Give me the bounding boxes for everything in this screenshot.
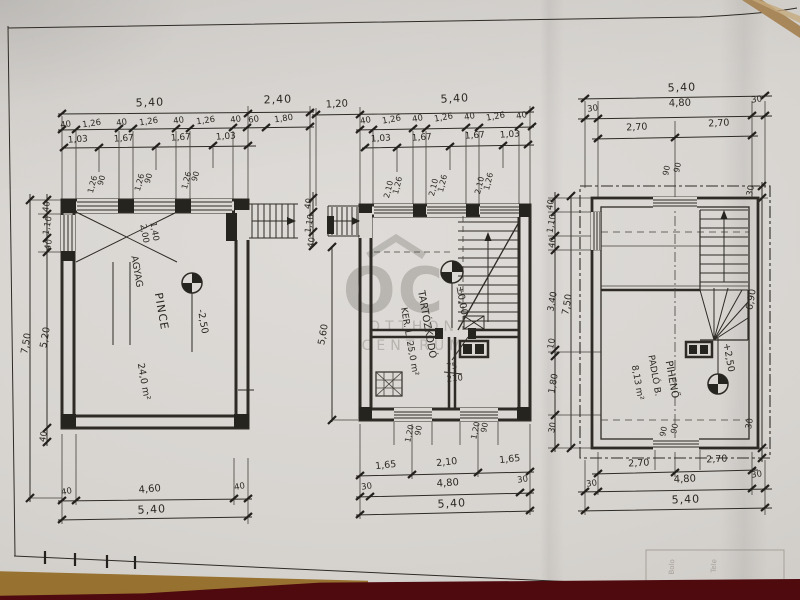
dim-label: 7,50 <box>19 332 34 355</box>
dim-label: 1,03 <box>68 134 89 145</box>
dim-label: 40 <box>60 486 72 498</box>
title-block-fragment: Bolo <box>668 559 677 575</box>
dim-label: 5,20 <box>38 326 53 349</box>
dim-label: 1,26 <box>196 115 216 128</box>
dim-label: 2,70 <box>706 453 728 465</box>
dim-label: 2,70 <box>626 121 648 133</box>
upper-fixtures <box>686 342 712 357</box>
dim-label: 1,10 <box>545 213 558 233</box>
dim-label: 5,40 <box>135 96 164 110</box>
dim-label: 1,67 <box>171 132 192 143</box>
dim-label: 1,26 <box>139 116 159 129</box>
dim-label: 40 <box>230 114 242 125</box>
door-size-label: 210 <box>446 373 463 385</box>
dim-label: 4,80 <box>673 473 696 485</box>
dim-label: 1,65 <box>499 453 521 466</box>
dim-label: 4,80 <box>669 98 692 110</box>
window-size-label: 90 <box>661 165 672 177</box>
dim-label: 1,03 <box>216 131 237 142</box>
dim-label: 40 <box>116 117 128 128</box>
window-size-label: 90 <box>413 425 424 437</box>
drawing-layer: OC OTTHON CENTRUM <box>0 0 800 600</box>
dim-label: 30 <box>517 474 529 485</box>
dim-label: 2,70 <box>708 117 730 129</box>
dim-label: 5,40 <box>440 91 469 105</box>
room-label-basement: PINCE <box>152 292 171 331</box>
dim-label: 1,67 <box>114 133 135 144</box>
photographed-floorplan-sheet: OC OTTHON CENTRUM <box>0 0 800 600</box>
ground-floor-plan: 1,20 5,40 40 1,26 40 1,26 40 1,26 40 1,0… <box>303 91 536 519</box>
window-size-label: 90 <box>479 422 490 434</box>
title-block: Bolo Tele <box>646 550 784 584</box>
dim-label: 40 <box>545 198 557 210</box>
dim-label: 40 <box>359 115 371 127</box>
dim-label: 5,40 <box>137 502 166 516</box>
upper-dimension-lines <box>548 92 772 515</box>
room-area-label: 8,13 m² <box>629 364 645 401</box>
dim-label: 1,80 <box>274 113 294 126</box>
upper-stair <box>700 210 748 340</box>
dim-label: 1,10 <box>41 215 54 235</box>
title-block-fragment: Tele <box>710 559 719 574</box>
dim-label: 1,26 <box>485 110 505 123</box>
dim-label: 5,60 <box>316 323 331 346</box>
window-size-label: 90 <box>190 170 201 182</box>
dim-label: 1,67 <box>412 132 433 143</box>
dim-label: 1,26 <box>381 113 401 126</box>
dim-label: 30 <box>586 478 598 489</box>
dim-label: 30 <box>361 481 373 492</box>
dim-label: 2,40 <box>263 93 292 107</box>
watermark-line1: OTTHON <box>369 319 459 335</box>
dim-label: 40 <box>411 113 423 125</box>
dim-label: 30 <box>745 184 757 196</box>
dim-label: 5,40 <box>667 81 696 95</box>
dim-label: 30 <box>751 469 763 480</box>
dim-label: 1,26 <box>433 111 453 124</box>
dim-label: 3,40 <box>546 291 559 313</box>
dim-label: 4,80 <box>436 477 459 490</box>
window-size-label: 90 <box>143 172 154 184</box>
basement-labels: 5,40 2,40 40 1,26 40 1,26 40 1,26 40 60 … <box>19 93 294 517</box>
dim-label: 40 <box>60 119 72 130</box>
dim-label: 1,03 <box>371 133 392 144</box>
dim-label: 60 <box>248 114 260 125</box>
dim-label: 5,40 <box>671 493 700 507</box>
window-size-label: 1,26 <box>391 176 404 195</box>
level-label: +2,50 <box>721 342 737 373</box>
dim-label: 30 <box>751 94 763 105</box>
dim-label: 30 <box>547 421 559 433</box>
dim-label: 40 <box>515 110 527 122</box>
dim-label: 30 <box>587 103 599 114</box>
dim-label: 40 <box>233 481 245 493</box>
window-size-label: 90 <box>669 423 680 435</box>
dim-label: 40 <box>41 200 53 212</box>
basement-dimension-lines <box>26 106 314 524</box>
room-label-soil: AGYAG <box>128 255 144 288</box>
dim-label: 1,80 <box>547 373 560 395</box>
door-size-label: 75 <box>446 361 458 372</box>
room-sub-label: PADLÓ B. <box>645 354 664 397</box>
dim-label: 5,40 <box>437 496 466 510</box>
window-size-label: 1,26 <box>482 172 495 191</box>
dim-label: 40 <box>463 111 475 123</box>
dim-label: 40 <box>306 236 318 248</box>
dim-label: 4,60 <box>138 483 161 496</box>
level-label: -2,50 <box>195 309 210 335</box>
dim-label: 40 <box>38 430 50 442</box>
dim-label: 2,10 <box>436 456 458 469</box>
dim-label: 1,20 <box>325 98 348 110</box>
window-size-label: 1,26 <box>436 174 449 193</box>
ground-entry-stair <box>327 206 360 236</box>
room-area-label: 24,0 m² <box>135 362 152 401</box>
dim-label: 7,50 <box>560 293 575 316</box>
dim-label: 1,26 <box>82 118 102 131</box>
dim-label: 1,03 <box>500 129 521 140</box>
basement-stair <box>249 204 298 238</box>
dim-label: 40 <box>547 236 559 248</box>
upper-floor-plan: 5,40 30 4,80 30 2,70 2,70 90 90 40 1,10 … <box>545 81 772 515</box>
dim-label: 40 <box>43 238 55 250</box>
dim-label: 30 <box>744 417 756 429</box>
shaft-size-label: 2,00 <box>137 223 150 243</box>
window-size-label: 90 <box>96 174 107 186</box>
window-size-label: 90 <box>672 162 683 174</box>
dim-label: 10 <box>546 337 558 349</box>
room-label-attic: PIHENŐ <box>663 359 683 399</box>
dim-label: 40 <box>173 115 185 126</box>
window-size-label: 90 <box>658 426 669 438</box>
dim-label: 40 <box>303 197 315 209</box>
basement-plan: 5,40 2,40 40 1,26 40 1,26 40 1,26 40 60 … <box>19 93 314 524</box>
level-label: ±0,00 <box>454 285 470 316</box>
dim-label: 2,70 <box>628 457 650 469</box>
dim-label: 1,67 <box>465 130 486 141</box>
dim-label: 1,65 <box>375 459 397 472</box>
